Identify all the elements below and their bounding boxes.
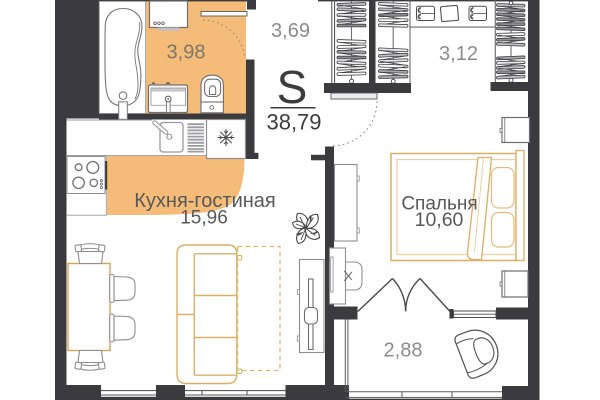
svg-text:2,88: 2,88 [384,340,423,362]
svg-text:10,60: 10,60 [415,209,464,231]
svg-text:15,96: 15,96 [180,208,228,229]
svg-text:3,69: 3,69 [271,20,310,42]
svg-text:3,98: 3,98 [167,42,206,64]
svg-text:S: S [277,61,308,113]
svg-text:3,12: 3,12 [439,43,478,65]
svg-text:38,79: 38,79 [266,110,321,135]
